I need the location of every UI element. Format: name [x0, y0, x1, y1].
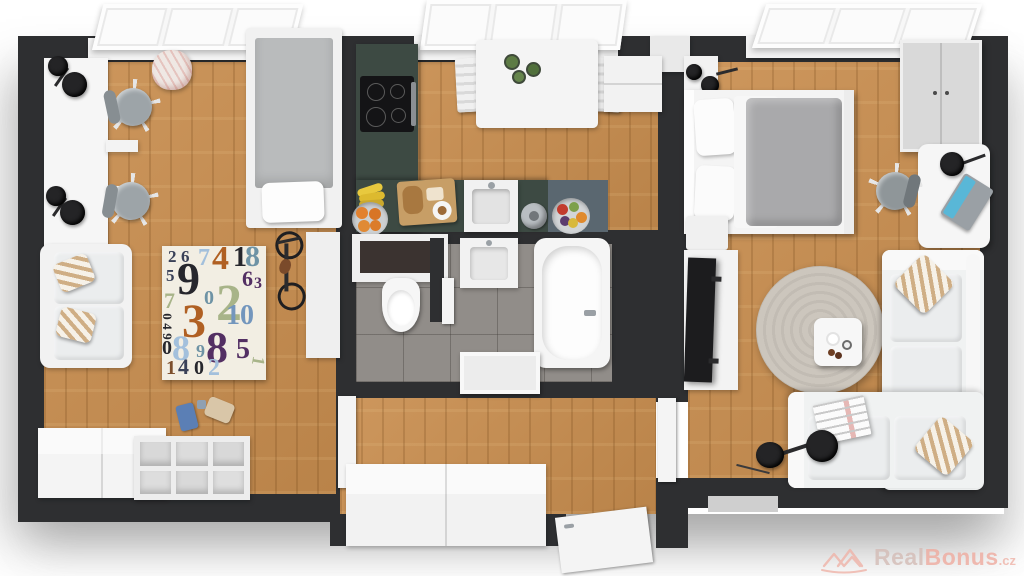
cookie: [828, 349, 835, 356]
desk-lamp-icon: [60, 200, 85, 225]
storage-bin: [140, 442, 171, 466]
entrance-door: [555, 507, 653, 574]
sink-basin: [472, 189, 510, 224]
desk-lamp-icon: [940, 152, 964, 176]
espresso-cup: [842, 340, 852, 350]
potted-plant: [506, 56, 518, 68]
fridge-cabinet: [604, 56, 662, 112]
faucet: [486, 240, 492, 246]
wall-divider-hall-living: [656, 478, 688, 548]
bed-pillow: [694, 165, 737, 221]
office-chair: [100, 170, 162, 232]
rug-digit: 0: [240, 302, 254, 330]
potted-plant: [528, 64, 539, 75]
houses-icon: [818, 544, 870, 574]
bed-blanket: [746, 98, 842, 226]
orange: [358, 220, 370, 232]
kitchen-sink: [464, 180, 518, 232]
wardrobe-handle: [933, 91, 937, 95]
shower-mat: [460, 352, 540, 394]
cooktop-knobs: [411, 82, 416, 126]
wc-door: [442, 278, 454, 324]
sofa-armrest: [788, 392, 804, 488]
fruit-bowl: [552, 198, 590, 234]
door-living-room: [658, 398, 676, 482]
orange-bowl: [352, 202, 388, 236]
office-chair: [864, 160, 926, 222]
hallway-wardrobe: [346, 464, 546, 546]
desk-lamp-icon: [62, 72, 87, 97]
bread-loaf: [402, 185, 424, 214]
wardrobe: [900, 40, 982, 152]
rug-digit: 6: [242, 268, 253, 290]
bed-footboard: [844, 90, 854, 234]
window-pane: [162, 8, 233, 46]
kettle-lid: [529, 211, 539, 221]
tv-stand: [711, 276, 721, 281]
rug-digit: 4: [178, 356, 189, 378]
bike-seat: [278, 258, 293, 276]
storage-bin: [140, 471, 171, 495]
coffee-table: [814, 318, 862, 366]
rug-digit: 4: [212, 242, 229, 276]
tv-stand: [708, 358, 718, 363]
doormat: [708, 496, 778, 512]
floor-plan-render: 26741859637020493100898514021: [0, 0, 1024, 576]
rug-digit: 7: [164, 290, 175, 312]
wall-divider-bath-living: [612, 226, 688, 402]
storage-bin: [176, 471, 207, 495]
potted-plant: [514, 72, 524, 82]
toilet: [382, 278, 420, 332]
coffee-cup: [826, 332, 840, 346]
storage-bin: [213, 471, 244, 495]
storage-cabinet-open: [134, 436, 250, 500]
rug-digit: 2: [208, 356, 220, 380]
single-bed: [246, 28, 342, 228]
toilet-seat: [387, 290, 415, 326]
rug-digit: 1: [249, 355, 268, 367]
watermark: RealBonus.cz: [818, 544, 1016, 574]
rug-digit: 2: [168, 248, 177, 265]
bread-slices: [426, 187, 444, 201]
floor-lamp-shade: [806, 430, 838, 462]
window-pane: [828, 8, 906, 44]
rug-digit: 1: [226, 302, 240, 330]
orange: [356, 207, 368, 219]
window-pane: [757, 8, 835, 44]
office-chair: [102, 76, 164, 138]
cabinet-seam: [604, 83, 662, 85]
burner: [391, 108, 406, 123]
wall-lamp-icon: [686, 64, 702, 80]
kettle: [521, 203, 547, 229]
watermark-text-bonus: Bonus: [925, 544, 999, 571]
dining-table: [476, 40, 598, 128]
wardrobe-seam: [940, 43, 942, 149]
rug-digit: 1: [166, 358, 176, 378]
fruit: [569, 202, 579, 212]
desk-lamp-icon: [48, 56, 68, 76]
bed-headboard: [684, 90, 694, 234]
wall-right: [980, 36, 1008, 508]
bath-niche: [360, 241, 440, 273]
bed-pillow: [261, 181, 324, 223]
cookie: [835, 352, 842, 359]
bathtub-faucet: [584, 310, 596, 316]
numbers-rug: 26741859637020493100898514021: [162, 246, 266, 380]
watermark-text-tld: .cz: [999, 553, 1016, 568]
cooktop: [360, 76, 414, 132]
wardrobe-seam: [445, 464, 447, 546]
burner: [366, 107, 386, 127]
bed-bench: [686, 216, 728, 250]
rug-digit: 0: [161, 313, 174, 320]
kids-room-sofa: [40, 244, 132, 368]
vanity-sink: [460, 238, 518, 288]
floor-lamp-base: [756, 442, 784, 468]
rug-digit: 5: [166, 267, 175, 284]
tv: [684, 258, 716, 383]
fruit: [568, 218, 578, 228]
storage-bin: [176, 442, 207, 466]
storage-bin: [213, 442, 244, 466]
cutting-board: [397, 178, 458, 226]
wardrobe-handle: [945, 91, 949, 95]
watermark-text-real: Real: [874, 544, 925, 571]
backpack: [152, 50, 192, 90]
bed-pillow: [693, 98, 737, 157]
desk-return-shelf: [106, 140, 138, 152]
bathtub-basin: [542, 246, 602, 360]
rug-digit: 0: [162, 338, 172, 358]
window-pane: [97, 8, 168, 46]
double-bed: [684, 90, 854, 234]
orange: [369, 208, 381, 220]
bathtub: [534, 238, 610, 368]
rug-digit: 0: [194, 358, 204, 378]
fruit: [557, 204, 568, 215]
burner: [367, 83, 385, 101]
burner: [390, 84, 405, 99]
orange: [370, 220, 381, 231]
bed-mattress: [255, 38, 333, 188]
faucet: [488, 182, 495, 189]
door-handle: [564, 524, 574, 529]
sink-basin: [470, 247, 508, 280]
window-pane: [899, 8, 977, 44]
